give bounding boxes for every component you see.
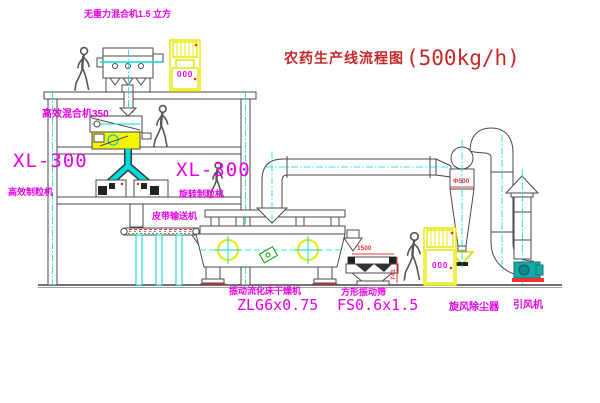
label-dryer-model: ZLG6x0.75: [237, 298, 318, 313]
label-belt-conveyor: 皮带输送机: [152, 212, 197, 222]
granulators-drawing: [96, 149, 168, 197]
diagram-title: 农药生产线流程图 (500kg/h): [284, 46, 520, 70]
title-text: 农药生产线流程图: [284, 48, 404, 68]
title-capacity: (500kg/h): [406, 46, 520, 70]
cabinet2-indicator: 000: [432, 262, 448, 270]
dim-cyclone-diameter: Φ500: [453, 179, 469, 186]
label-high-eff-mixer: 高效混合机350: [42, 109, 109, 120]
control-cabinet-2: [424, 228, 456, 285]
dim-screen-length: 1500: [357, 246, 371, 253]
label-gravity-free-mixer: 无重力混合机1.5 立方: [84, 10, 171, 20]
label-granulator-right-model: XL-300: [176, 161, 251, 180]
label-cyclone: 旋风除尘器: [449, 302, 499, 313]
label-granulator-left-name: 高效制粒机: [8, 188, 53, 198]
label-granulator-left-model: XL-300: [13, 152, 88, 171]
control-cabinet-1: [170, 40, 200, 91]
cabinet1-indicator: 000: [177, 71, 193, 79]
induced-draft-fan-drawing: [512, 262, 544, 282]
label-fan: 引风机: [513, 300, 543, 311]
label-screen-model: FS0.6x1.5: [337, 298, 418, 313]
dim-screen-height: 741: [391, 269, 398, 280]
label-granulator-right-name: 旋转制粒机: [179, 190, 224, 200]
process-flow-diagram: 农药生产线流程图 (500kg/h) 无重力混合机1.5 立方 高效混合机350…: [0, 0, 600, 403]
